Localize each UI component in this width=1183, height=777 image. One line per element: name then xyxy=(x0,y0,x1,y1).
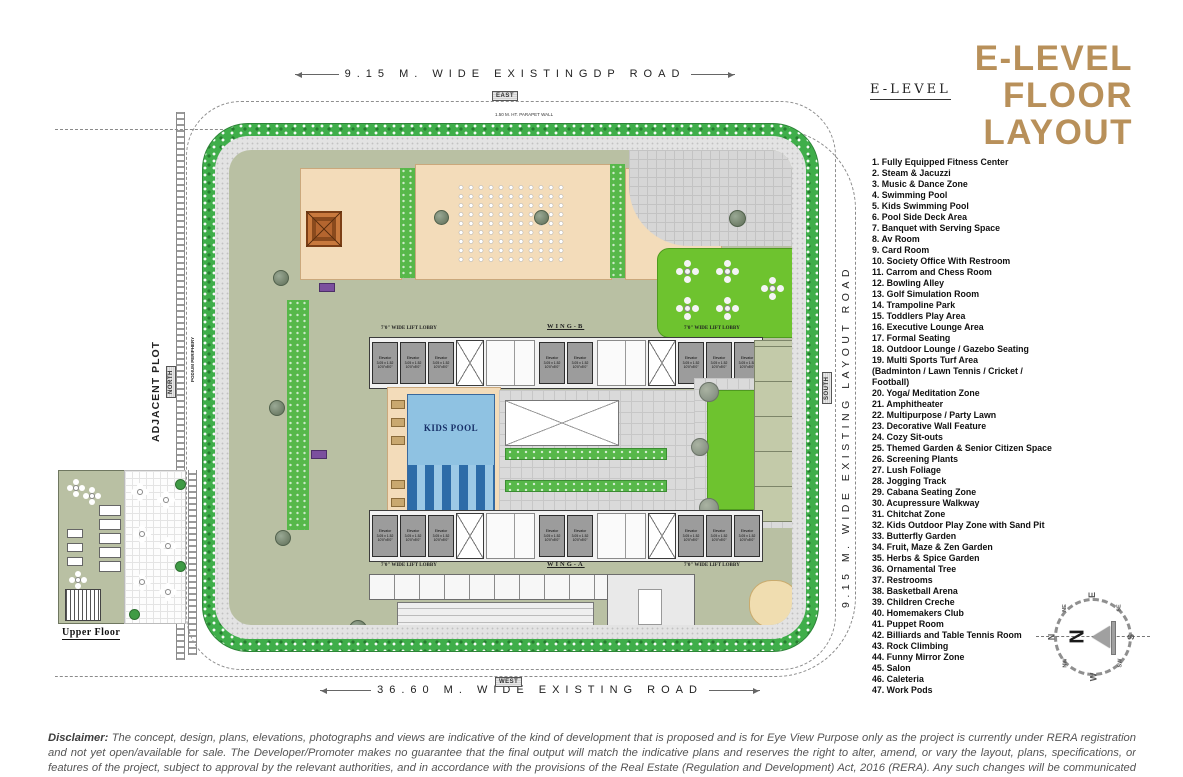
legend-line: 23. Decorative Wall Feature xyxy=(872,421,1172,432)
planter-strip xyxy=(610,164,625,278)
arrow-left-icon xyxy=(295,74,339,75)
legend-line: 8. Av Room xyxy=(872,234,1172,245)
seating-cluster xyxy=(684,305,691,312)
legend-line: 4. Swimming Pool xyxy=(872,190,1172,201)
legend-line: 26. Screening Plants xyxy=(872,454,1172,465)
legend-line: 11. Carrom and Chess Room xyxy=(872,267,1172,278)
tree xyxy=(534,210,549,225)
page-title: E-LEVEL FLOOR LAYOUT xyxy=(975,40,1133,151)
lounger xyxy=(391,400,405,409)
bowling-alley xyxy=(397,602,594,625)
upper-floor-inset: Upper Floor xyxy=(55,467,187,649)
page-root: { "header": { "section_label": "E-LEVEL"… xyxy=(0,0,1183,766)
planter-strip xyxy=(400,168,415,278)
legend-line: 17. Formal Seating xyxy=(872,333,1172,344)
kids-pool-label: KIDS POOL xyxy=(408,423,494,433)
tree xyxy=(691,438,709,456)
lounge-bed xyxy=(99,547,121,558)
tree xyxy=(269,400,285,416)
elevator: Elevator3.05 x 1.5210'0"x5'0" xyxy=(428,515,454,557)
planter-strip xyxy=(505,480,667,492)
direction-box-west: WEST xyxy=(495,677,522,687)
legend-line: 47. Work Pods xyxy=(872,685,1172,696)
table-cluster xyxy=(89,493,95,499)
compass-point: SE xyxy=(1117,604,1123,611)
table-cluster xyxy=(163,497,169,503)
tree xyxy=(729,210,746,227)
compass-point: S xyxy=(1126,634,1136,640)
bench xyxy=(67,557,83,566)
compass-needle-bar xyxy=(1111,621,1116,655)
arrow-right-icon xyxy=(709,690,760,691)
upper-floor-terrace xyxy=(124,470,186,624)
table-cluster xyxy=(139,579,145,585)
floor-plan: 7'0" WIDE LIFT LOBBY WING-B 7'0" WIDE LI… xyxy=(175,96,860,676)
legend-line: 20. Yoga/ Meditation Zone xyxy=(872,388,1172,399)
compass-needle-label: N xyxy=(1067,629,1090,643)
top-road-label: 9.15 M. WIDE EXISTINGDP ROAD xyxy=(295,68,735,80)
entry-plaza xyxy=(629,150,792,246)
wing-a-building: Elevator3.05 x 1.5210'0"x5'0" Elevator3.… xyxy=(369,510,763,562)
equipment-bench xyxy=(311,450,327,459)
legend-line: 10. Society Office With Restroom xyxy=(872,256,1172,267)
bench xyxy=(67,543,83,552)
disclaimer-text: The concept, design, plans, elevations, … xyxy=(48,732,1136,777)
elevator: Elevator3.05 x 1.5210'0"x5'0" xyxy=(567,342,593,384)
restroom-row xyxy=(369,574,621,600)
legend-line: Football) xyxy=(872,377,1172,388)
wing-rooms xyxy=(486,513,535,559)
seating-cluster xyxy=(724,305,731,312)
legend-line: 13. Golf Simulation Room xyxy=(872,289,1172,300)
seating-lawn xyxy=(657,248,792,338)
lounger xyxy=(391,480,405,489)
legend-line: 22. Multipurpose / Party Lawn xyxy=(872,410,1172,421)
elevator: Elevator3.05 x 1.5210'0"x5'0" xyxy=(400,515,426,557)
elevator: Elevator3.05 x 1.5210'0"x5'0" xyxy=(678,515,704,557)
legend-line: 33. Butterfly Garden xyxy=(872,531,1172,542)
disclaimer-label: Disclaimer: xyxy=(48,732,108,744)
kids-pool: KIDS POOL xyxy=(407,394,495,524)
bottom-road-text: 36.60 M. WIDE EXISTING ROAD xyxy=(371,684,709,696)
lounger xyxy=(391,436,405,445)
podium-floor: 7'0" WIDE LIFT LOBBY WING-B 7'0" WIDE LI… xyxy=(229,150,792,625)
legend-line: 9. Card Room xyxy=(872,245,1172,256)
tree xyxy=(175,479,186,490)
elevator: Elevator3.05 x 1.5210'0"x5'0" xyxy=(539,515,565,557)
legend-line: 37. Restrooms xyxy=(872,575,1172,586)
legend-line: 16. Executive Lounge Area xyxy=(872,322,1172,333)
gazebo-pergola xyxy=(306,211,342,247)
legend-line: 14. Trampoline Park xyxy=(872,300,1172,311)
seating-cluster xyxy=(724,268,731,275)
bottom-road-label: 36.60 M. WIDE EXISTING ROAD xyxy=(320,684,760,696)
sand-pit-play-zone xyxy=(749,580,792,625)
elevator: Elevator3.05 x 1.5210'0"x5'0" xyxy=(400,342,426,384)
legend-line: (Badminton / Lawn Tennis / Cricket / xyxy=(872,366,1172,377)
compass-point: NW xyxy=(1063,658,1069,667)
arrow-right-icon xyxy=(691,74,735,75)
tree xyxy=(699,382,719,402)
legend-line: 30. Acupressure Walkway xyxy=(872,498,1172,509)
upper-floor-label: Upper Floor xyxy=(62,627,120,640)
planter-strip xyxy=(505,448,667,460)
parapet-wall-note: 1.50 M. HT. PARAPET WALL xyxy=(495,112,553,117)
lift-lobby-label: 7'0" WIDE LIFT LOBBY xyxy=(684,326,740,331)
legend-line: 21. Amphitheater xyxy=(872,399,1172,410)
elevator: Elevator3.05 x 1.5210'0"x5'0" xyxy=(372,515,398,557)
legend-line: 36. Ornamental Tree xyxy=(872,564,1172,575)
tree xyxy=(273,270,289,286)
legend-line: 32. Kids Outdoor Play Zone with Sand Pit xyxy=(872,520,1172,531)
legend-line: 3. Music & Dance Zone xyxy=(872,179,1172,190)
legend-line: 25. Themed Garden & Senior Citizen Space xyxy=(872,443,1172,454)
stair-shaft xyxy=(648,340,676,386)
arrow-left-icon xyxy=(320,690,371,691)
elevator-bank: Elevator3.05 x 1.5210'0"x5'0" Elevator3.… xyxy=(676,511,762,561)
seating-cluster xyxy=(684,268,691,275)
table-cluster xyxy=(165,543,171,549)
lift-lobby-label: 7'0" WIDE LIFT LOBBY xyxy=(684,563,740,568)
compass-point: SW xyxy=(1117,659,1123,668)
screening-plants xyxy=(287,300,309,530)
page-title-line: LAYOUT xyxy=(975,114,1133,151)
page-title-line: FLOOR xyxy=(975,77,1133,114)
legend-line: 27. Lush Foliage xyxy=(872,465,1172,476)
upper-floor-block xyxy=(58,470,126,624)
elevator: Elevator3.05 x 1.5210'0"x5'0" xyxy=(428,342,454,384)
lift-lobby-label: 7'0" WIDE LIFT LOBBY xyxy=(381,563,437,568)
podium-periphery-hatch xyxy=(188,470,197,655)
compass-point: N xyxy=(1046,634,1056,641)
table-cluster xyxy=(75,577,81,583)
elevator: Elevator3.05 x 1.5210'0"x5'0" xyxy=(706,515,732,557)
page-title-line: E-LEVEL xyxy=(975,40,1133,77)
tree xyxy=(275,530,291,546)
seating-cluster xyxy=(769,285,776,292)
legend-line: 15. Toddlers Play Area xyxy=(872,311,1172,322)
table-cluster xyxy=(139,531,145,537)
legend-line: 31. Chitchat Zone xyxy=(872,509,1172,520)
compass-point: NE xyxy=(1062,604,1068,612)
stair-shaft xyxy=(456,340,484,386)
lounger xyxy=(391,498,405,507)
lounge-bed xyxy=(99,505,121,516)
legend-line: 35. Herbs & Spice Garden xyxy=(872,553,1172,564)
equipment-bench xyxy=(319,283,335,292)
legend-line: 6. Pool Side Deck Area xyxy=(872,212,1172,223)
stair-shaft xyxy=(648,513,676,559)
lift-lobby-label: 7'0" WIDE LIFT LOBBY xyxy=(381,326,437,331)
legend-line: 12. Bowling Alley xyxy=(872,278,1172,289)
staircase xyxy=(65,589,101,621)
wing-rooms xyxy=(486,340,535,386)
section-label: E-LEVEL xyxy=(870,82,951,100)
compass-point: W xyxy=(1088,673,1098,682)
bench xyxy=(67,529,83,538)
compass-rose: E SE S SW W NW N NE N xyxy=(1048,592,1138,682)
stair-shaft xyxy=(456,513,484,559)
table-cluster xyxy=(165,589,171,595)
wing-rooms xyxy=(597,513,646,559)
legend-line: 19. Multi Sports Turf Area xyxy=(872,355,1172,366)
top-road-text: 9.15 M. WIDE EXISTINGDP ROAD xyxy=(339,68,692,80)
tree xyxy=(434,210,449,225)
elevator-bank: Elevator3.05 x 1.5210'0"x5'0" Elevator3.… xyxy=(537,338,595,388)
banquet-seating xyxy=(456,183,566,263)
tree xyxy=(349,620,367,625)
elevator-bank: Elevator3.05 x 1.5210'0"x5'0" Elevator3.… xyxy=(537,511,595,561)
elevator: Elevator3.05 x 1.5210'0"x5'0" xyxy=(734,515,760,557)
lounger xyxy=(391,418,405,427)
legend-line: 7. Banquet with Serving Space xyxy=(872,223,1172,234)
compass-point: E xyxy=(1087,592,1097,598)
legend-line: 29. Cabana Seating Zone xyxy=(872,487,1172,498)
elevator: Elevator3.05 x 1.5210'0"x5'0" xyxy=(567,515,593,557)
wing-a-label: WING-A xyxy=(547,561,585,568)
amenity-rooms-east xyxy=(754,340,792,522)
legend-line: 5. Kids Swimming Pool xyxy=(872,201,1172,212)
compass-needle-icon xyxy=(1092,626,1110,648)
legend-line: 34. Fruit, Maze & Zen Garden xyxy=(872,542,1172,553)
elevator: Elevator3.05 x 1.5210'0"x5'0" xyxy=(539,342,565,384)
lounge-bed xyxy=(99,533,121,544)
elevator-bank: Elevator3.05 x 1.5210'0"x5'0" Elevator3.… xyxy=(370,511,456,561)
legend-line: 28. Jogging Track xyxy=(872,476,1172,487)
wing-b-label: WING-B xyxy=(547,323,584,330)
legend-line: 24. Cozy Sit-outs xyxy=(872,432,1172,443)
tree xyxy=(129,609,140,620)
lounge-bed xyxy=(99,561,121,572)
wing-rooms xyxy=(597,340,646,386)
multipurpose-hall-roof xyxy=(505,400,619,446)
tree xyxy=(175,561,186,572)
legend-line: 18. Outdoor Lounge / Gazebo Seating xyxy=(872,344,1172,355)
table-cluster xyxy=(73,485,79,491)
legend-line: 2. Steam & Jacuzzi xyxy=(872,168,1172,179)
disclaimer: Disclaimer: The concept, design, plans, … xyxy=(48,731,1136,777)
legend-line: 1. Fully Equipped Fitness Center xyxy=(872,157,1172,168)
elevator: Elevator3.05 x 1.5210'0"x5'0" xyxy=(372,342,398,384)
elevator-bank: Elevator3.05 x 1.5210'0"x5'0" Elevator3.… xyxy=(370,338,456,388)
lounge-bed xyxy=(99,519,121,530)
table-cluster xyxy=(137,489,143,495)
